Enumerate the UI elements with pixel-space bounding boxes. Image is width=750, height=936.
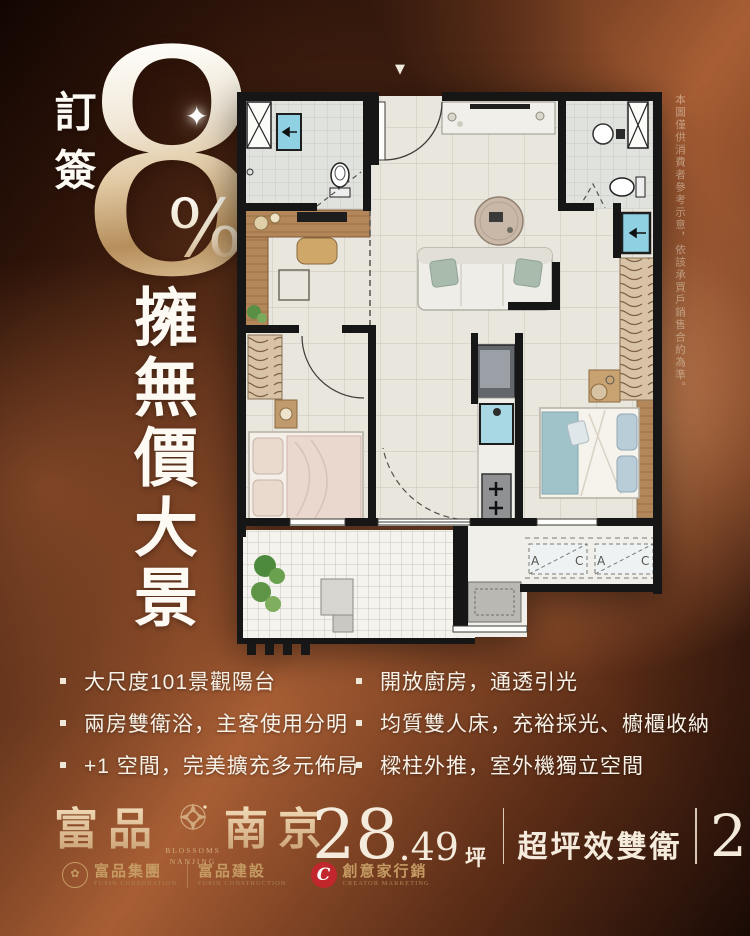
feature-item: 兩房雙衛浴，主客使用分明: [60, 708, 359, 738]
sink: [593, 124, 613, 144]
desk-chair: [297, 238, 337, 264]
window-band: [537, 519, 597, 525]
feature-text: 開放廚房，通透引光: [380, 666, 578, 696]
ac-label: A: [597, 554, 606, 568]
layout-number: 2+1: [710, 807, 750, 865]
feature-item: 樑柱外推，室外機獨立空間: [356, 750, 710, 780]
divider: [695, 808, 697, 864]
kitchen: [475, 345, 515, 522]
divider: [503, 808, 505, 864]
feature-text: 樑柱外推，室外機獨立空間: [380, 750, 644, 780]
bullet-icon: [60, 678, 66, 684]
company-name-en: FUPIN CONSTRUCTION: [198, 880, 287, 887]
fupin-crest-icon: ✿: [62, 862, 88, 888]
bullet-icon: [60, 720, 66, 726]
brand-name-cn-left: 富品: [54, 800, 162, 860]
company-name: 富品集團: [94, 864, 177, 880]
divider: [187, 862, 188, 888]
feature-text: +1 空間，完美擴充多元佈局: [84, 750, 359, 780]
promo-percent-sign: %: [167, 182, 243, 275]
toilet: [610, 178, 634, 196]
feature-text: 大尺度101景觀陽台: [84, 666, 276, 696]
sofa: [418, 248, 552, 310]
pillow: [253, 480, 283, 516]
bullet-icon: [356, 762, 362, 768]
bullet-icon: [356, 720, 362, 726]
brand-en-top: BLOSSOMS: [164, 846, 222, 855]
bullet-icon: [60, 762, 66, 768]
feature-item: 大尺度101景觀陽台: [60, 666, 359, 696]
rosette-icon: [171, 800, 215, 840]
tagline: 超坪效雙衛: [517, 822, 682, 866]
railing-ticks: [247, 644, 310, 655]
pillow: [253, 438, 283, 474]
sparkle-icon: ✦: [185, 100, 208, 133]
company-name-en: CREATOR MARKETING: [343, 880, 430, 887]
feature-column-left: 大尺度101景觀陽台 兩房雙衛浴，主客使用分明 +1 空間，完美擴充多元佈局: [60, 666, 359, 792]
feature-column-right: 開放廚房，通透引光 均質雙人床，充裕採光、櫥櫃收納 樑柱外推，室外機獨立空間: [356, 666, 710, 792]
window-band: [290, 519, 345, 525]
desk-chair: [591, 384, 607, 400]
ac-label: A: [531, 554, 540, 568]
entry-marker-icon: ▼: [395, 62, 405, 77]
pillow: [617, 414, 637, 450]
feature-item: 開放廚房，通透引光: [356, 666, 710, 696]
feature-item: 均質雙人床，充裕採光、櫥櫃收納: [356, 708, 710, 738]
floor-plan: A C A C: [237, 92, 662, 662]
feature-text: 兩房雙衛浴，主客使用分明: [84, 708, 348, 738]
promo-headline: 擁無價大景: [114, 284, 206, 634]
brand-lockup: 富品 BLOSSOMS NANJING 南京: [54, 800, 332, 866]
sofa-pillow: [429, 258, 458, 287]
door-mat: [468, 582, 521, 622]
bed-double: [540, 408, 639, 498]
company-name: 富品建設: [198, 864, 287, 880]
unit-stats: 28 .49 坪 超坪效雙衛 2+1 房: [312, 802, 750, 872]
step-mat: [321, 579, 353, 615]
company-fupin-corporation: ✿ 富品集團 FUPIN CORPORATION: [62, 862, 177, 888]
area-integer: 28: [312, 802, 399, 870]
wardrobe-hangers: [620, 258, 654, 400]
entry-door-leaf: [378, 102, 385, 160]
pillow: [617, 456, 637, 492]
company-fupin-construction: 富品建設 FUPIN CONSTRUCTION: [198, 864, 287, 887]
disclaimer-text: 本圖僅供消費者參考示意，依該承買戶銷售合約為準。: [673, 94, 688, 394]
bullet-icon: [356, 678, 362, 684]
area-unit: 坪: [465, 842, 486, 872]
feature-item: +1 空間，完美擴充多元佈局: [60, 750, 359, 780]
desk-monitor: [297, 212, 347, 222]
real-estate-poster: 訂簽 8 ✦ % 擁無價大景 本圖僅供消費者參考示意，依該承買戶銷售合約為準。 …: [0, 0, 750, 936]
bed-double: [249, 432, 363, 522]
wardrobe-hangers: [248, 335, 282, 399]
sofa-pillow: [513, 258, 542, 287]
ac-label: C: [641, 554, 649, 568]
company-name-en: FUPIN CORPORATION: [94, 880, 177, 887]
area-decimal: .49: [399, 828, 459, 866]
brand-ornament: BLOSSOMS NANJING: [164, 800, 222, 866]
feature-text: 均質雙人床，充裕採光、櫥櫃收納: [380, 708, 710, 738]
ac-label: C: [575, 554, 583, 568]
